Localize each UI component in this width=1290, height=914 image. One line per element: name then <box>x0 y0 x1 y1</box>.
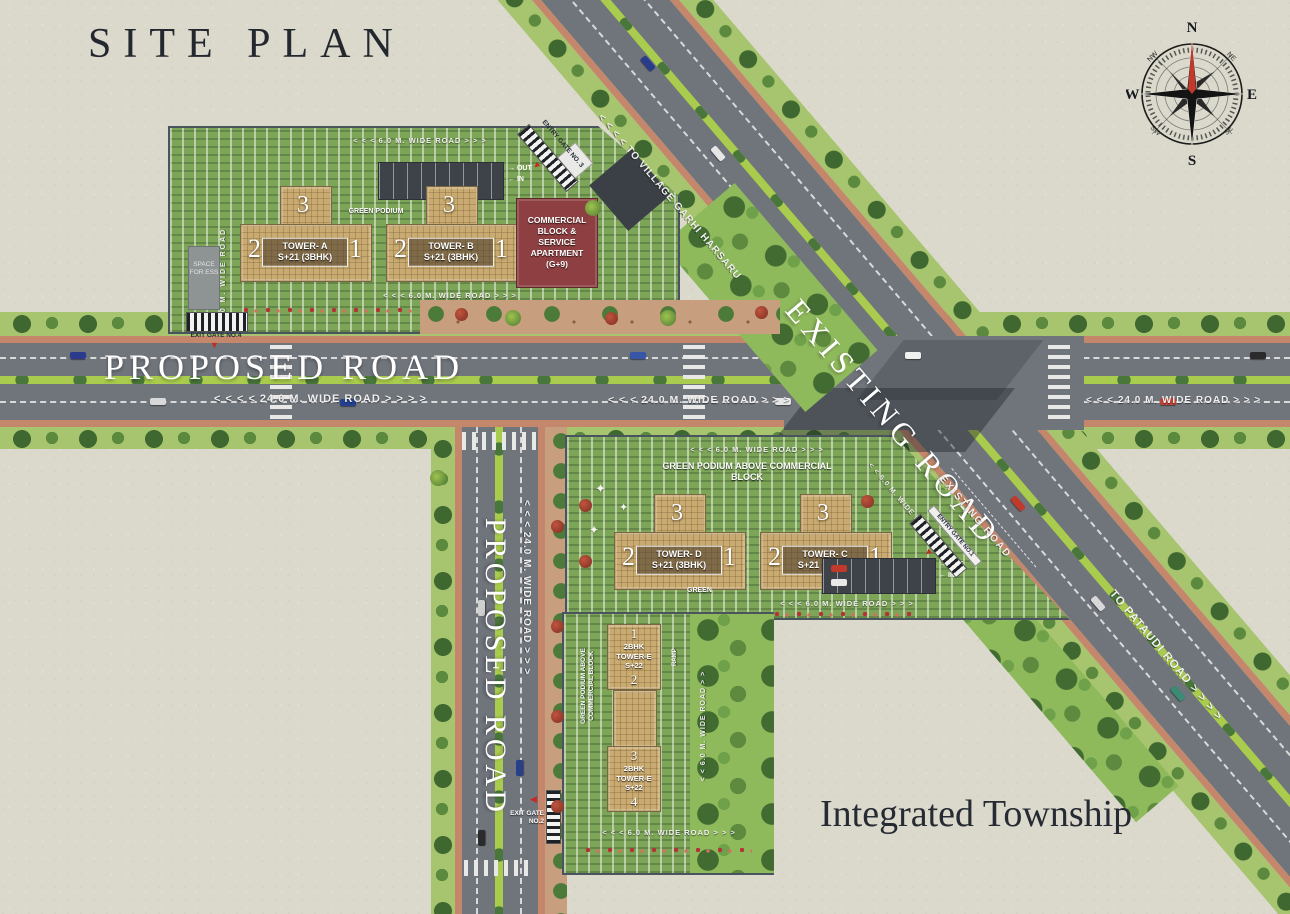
road-edge <box>538 427 545 914</box>
car <box>831 565 847 572</box>
wing-number: 2 <box>768 542 781 572</box>
wing-number: 2 <box>631 672 638 688</box>
red-bush <box>755 306 768 319</box>
inner-road-label: < < < 6.0 M. WIDE ROAD > > > <box>717 599 977 608</box>
palm-tree <box>505 310 521 326</box>
palm-tree <box>430 470 446 486</box>
podium-note: GREEN PODIUM ABOVE COMMERCIAL BLOCK <box>662 461 832 484</box>
road-width-label: < < < 24.0 M. WIDE ROAD > > > <box>1086 395 1261 406</box>
tower-b: 3 2 1 TOWER- B S+21 (3BHK) <box>386 186 516 280</box>
tower-name: TOWER- D <box>656 549 701 559</box>
palm-tree <box>585 200 601 216</box>
palm-tree <box>660 310 676 326</box>
red-bush <box>579 555 592 568</box>
car <box>478 830 485 846</box>
township-label: Integrated Township <box>820 792 1132 836</box>
proposed-road-name-vertical: PROPOSED ROAD <box>478 518 512 816</box>
walkway <box>420 300 780 334</box>
star-paving-icon: ✦ <box>589 523 599 537</box>
tower-d-label: TOWER- D S+21 (3BHK) <box>636 546 722 575</box>
inner-road-label: < < < 6.0 M. WIDE ROAD > > > <box>627 445 887 454</box>
tower-type: 2BHK <box>624 643 644 652</box>
wing-number: 4 <box>631 794 638 810</box>
tower-name: TOWER- A <box>283 241 328 251</box>
compass-rose: N S E W NE NW SE SW <box>1126 16 1258 168</box>
inner-road-label-vertical: < < 6.0 M. WIDE ROAD > > <box>700 666 707 786</box>
wing-number: 3 <box>297 192 309 219</box>
tower-name: TOWER-E <box>616 775 651 784</box>
zebra-crossing <box>464 860 534 876</box>
zebra-crossing <box>683 345 705 419</box>
tower-type: 2BHK <box>624 765 644 774</box>
road-width-label: < < < 24.0 M. WIDE ROAD > > > <box>608 394 790 406</box>
proposed-road-name-horizontal: PROPOSED ROAD <box>104 346 464 388</box>
tower-a-label: TOWER- A S+21 (3BHK) <box>262 238 348 267</box>
flower-bed <box>240 306 420 315</box>
wing-number: 3 <box>443 192 455 219</box>
zebra-crossing <box>462 432 536 450</box>
wing-number: 3 <box>631 748 638 764</box>
tower-spec: S+22 <box>625 784 643 793</box>
green-podium-label: GREEN PODIUM <box>344 208 408 215</box>
compass-ne: NE <box>1225 51 1237 63</box>
tower-spec: S+21 (3BHK) <box>424 252 478 262</box>
wing-number: 1 <box>723 542 736 572</box>
ess-label: SPACE FOR ESS <box>189 247 219 278</box>
flower-bed <box>582 846 752 854</box>
tower-spec: S+21 (3BHK) <box>278 252 332 262</box>
red-bush <box>551 520 564 533</box>
inner-road-label: < < < 6.0 M. WIDE ROAD > > > <box>310 291 590 300</box>
red-bush <box>551 710 564 723</box>
compass-w: W <box>1126 87 1140 103</box>
page-title: SITE PLAN <box>88 20 405 68</box>
ramp-label: RAMP <box>672 648 678 666</box>
tower-spec: S+21 (3BHK) <box>652 560 706 570</box>
car <box>516 760 523 776</box>
star-paving-icon: ✦ <box>595 481 606 497</box>
car <box>831 579 847 586</box>
car <box>630 352 646 359</box>
tower-e-upper: 1 2BHK TOWER-E S+22 2 <box>607 624 661 690</box>
block-tower-e: 1 2BHK TOWER-E S+22 2 3 2BHK TOWER-E S+2… <box>562 612 774 875</box>
ess-space: SPACE FOR ESS <box>188 246 220 310</box>
arrow-left-icon: ← <box>508 176 515 183</box>
red-bush <box>455 308 468 321</box>
tower-spec: S+22 <box>625 662 643 671</box>
car <box>1250 352 1266 359</box>
road-width-label: < < < < 24.0 M. WIDE ROAD > > > > <box>214 393 427 405</box>
wing-number: 2 <box>622 542 635 572</box>
red-bush <box>551 800 564 813</box>
wing-number: 2 <box>394 234 407 264</box>
gate-4-barrier <box>186 312 248 332</box>
podium-note-vertical: GREEN PODIUM ABOVE COMMERCIAL BLOCK <box>580 630 597 742</box>
red-bush <box>861 495 874 508</box>
red-bush <box>579 499 592 512</box>
compass-s: S <box>1188 153 1196 168</box>
compass-n: N <box>1187 20 1198 36</box>
wing-number: 3 <box>671 500 683 527</box>
tower-e-connector <box>613 690 657 748</box>
wing-number: 2 <box>248 234 261 264</box>
gate-4-label: EXIT GATE NO.4 <box>178 332 254 339</box>
road-verge <box>431 427 455 914</box>
inner-road-label: < < < 6.0 M. WIDE ROAD > > > <box>594 828 744 837</box>
car <box>905 352 921 359</box>
tower-e-lower: 3 2BHK TOWER-E S+22 4 <box>607 746 661 812</box>
arrow-left-icon: ◀ <box>530 794 537 805</box>
compass-e: E <box>1247 87 1257 103</box>
wing-number: 1 <box>495 234 508 264</box>
road-width-label-vertical: < < < 24.0 M. WIDE ROAD > > > <box>521 500 532 675</box>
wing-number: 1 <box>349 234 362 264</box>
wing-number: 1 <box>631 626 638 642</box>
compass-nw: NW <box>1146 50 1159 63</box>
red-bush <box>551 620 564 633</box>
tower-name: TOWER- B <box>428 241 473 251</box>
inner-road-label-vertical: 6.0 M. WIDE ROAD <box>220 202 227 322</box>
road-edge <box>0 420 1290 427</box>
gate-2-barrier <box>546 790 561 844</box>
tower-name: TOWER-E <box>616 653 651 662</box>
car <box>70 352 86 359</box>
road-edge <box>455 427 462 914</box>
zebra-crossing <box>1048 345 1070 419</box>
tower-a: 3 2 1 TOWER- A S+21 (3BHK) <box>240 186 370 280</box>
wing-number: 3 <box>817 500 829 527</box>
car <box>150 398 166 405</box>
tower-d: 3 2 1 TOWER- D S+21 (3BHK) <box>614 494 744 588</box>
tower-b-label: TOWER- B S+21 (3BHK) <box>408 238 494 267</box>
green-label: GREEN <box>687 587 712 594</box>
site-plan-root: < < < 6.0 M. WIDE ROAD > > > → OUT ← IN … <box>0 0 1290 914</box>
red-bush <box>605 312 618 325</box>
